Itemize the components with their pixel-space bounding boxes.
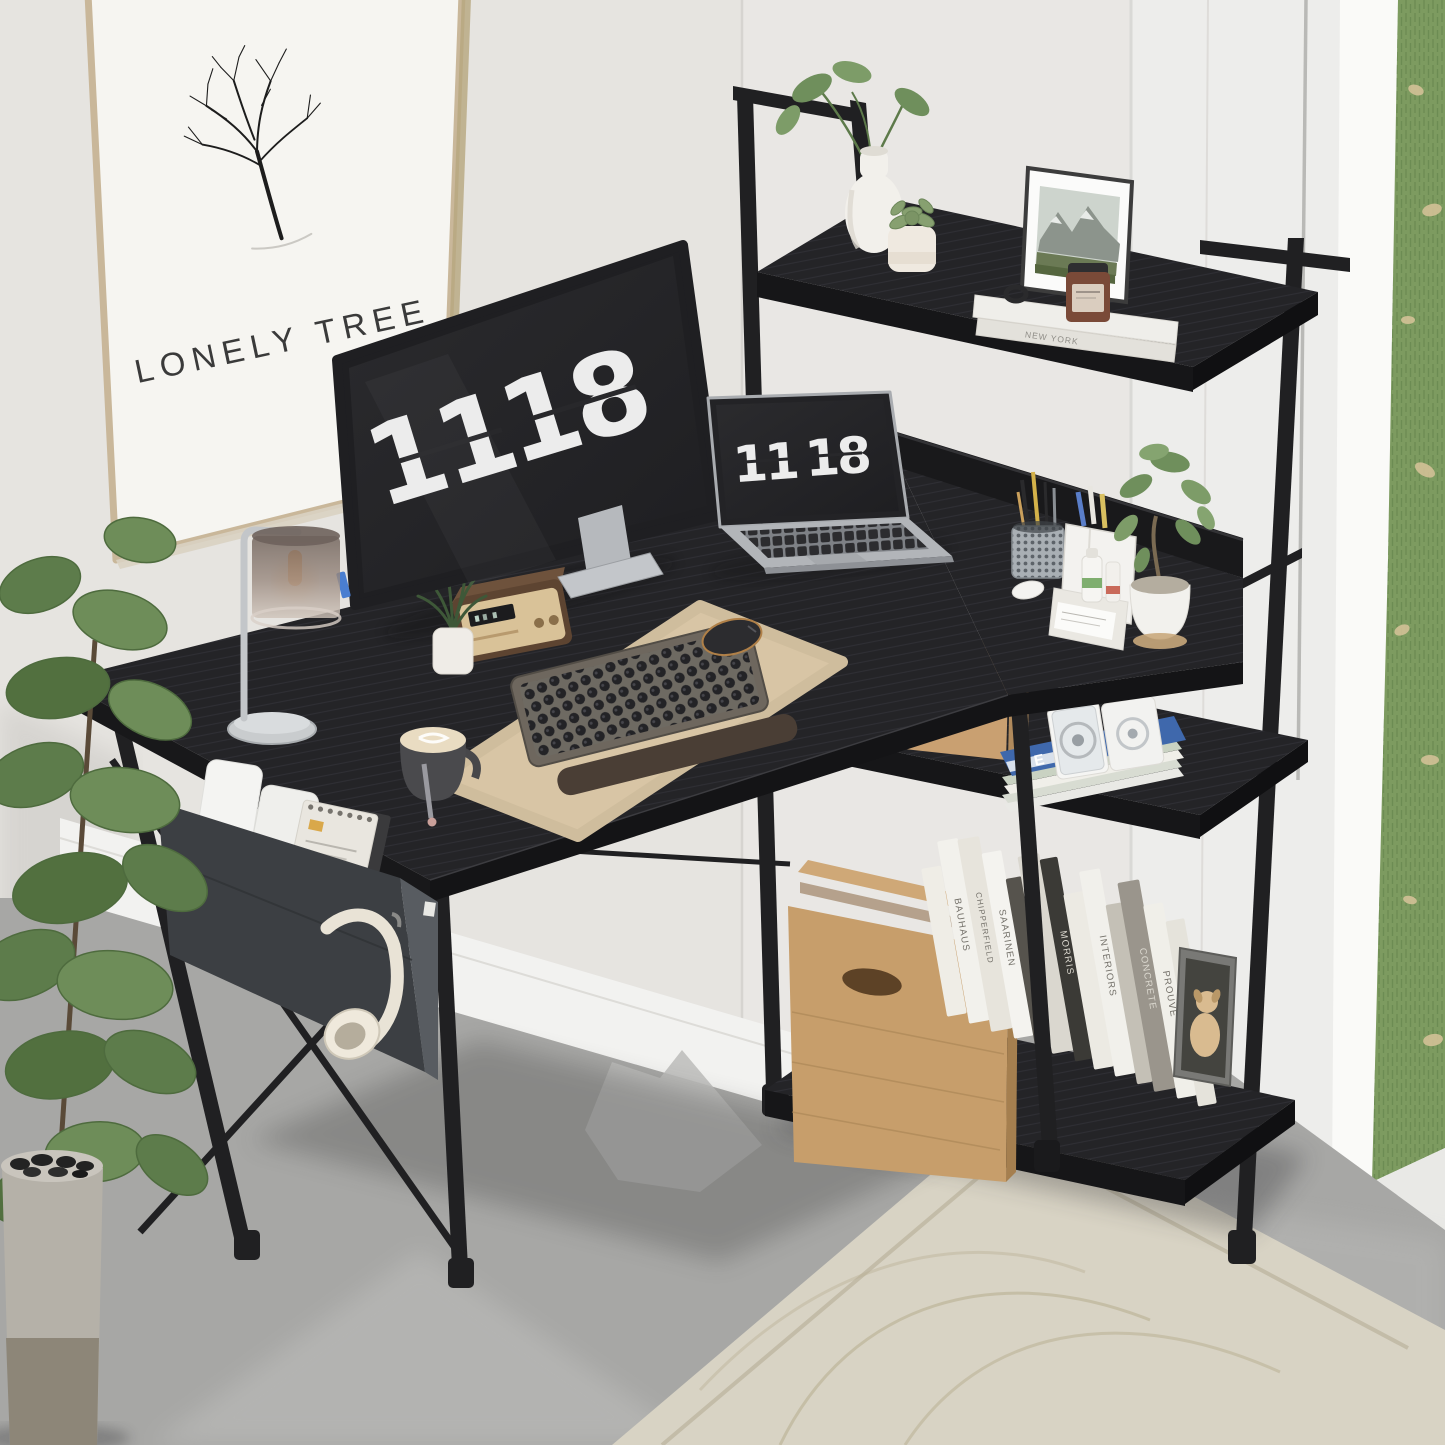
succulent-pot — [888, 196, 937, 272]
pot-base — [1133, 633, 1187, 649]
shelf-front-foot — [1034, 1140, 1060, 1172]
lamp-shade — [252, 536, 340, 618]
brush-tip — [428, 818, 437, 827]
lamp-shade-top — [252, 526, 340, 546]
latte-foam — [400, 727, 466, 753]
picture-frame-dog — [1174, 948, 1236, 1086]
desk-leg-foot — [234, 1230, 260, 1260]
dog-photo — [1190, 1013, 1220, 1057]
shelf-right-foot — [1228, 1230, 1256, 1264]
pot-pebbles — [1131, 576, 1189, 594]
laptop-clock-minutes: 18 — [803, 426, 871, 488]
laptop-clock-hours: 11 — [731, 432, 799, 494]
glue-label — [1106, 586, 1120, 594]
bottle-label — [1082, 578, 1102, 588]
scene-photo: LONELY TREE — [0, 0, 1445, 1445]
plant-pot-floor — [1, 1150, 103, 1445]
scene-canvas: LONELY TREE — [0, 0, 1445, 1445]
desk-leg-foot — [448, 1258, 474, 1288]
bag-label — [423, 901, 436, 916]
glue-stick — [1106, 562, 1120, 602]
candle-jar — [1066, 263, 1110, 322]
